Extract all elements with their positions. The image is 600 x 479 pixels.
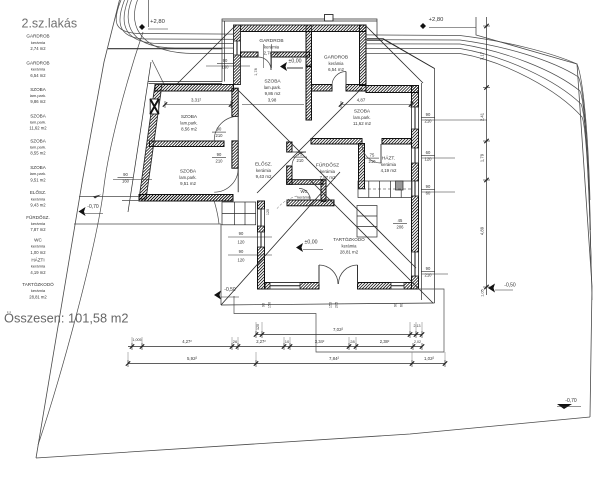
svg-text:-0,70: -0,70 <box>565 398 577 404</box>
svg-text:TARTÓZKODÓ: TARTÓZKODÓ <box>333 236 365 242</box>
svg-text:9,43 m2: 9,43 m2 <box>30 203 46 208</box>
svg-text:ELŐSZ.: ELŐSZ. <box>30 189 46 195</box>
svg-text:kerámia: kerámia <box>264 45 280 50</box>
svg-text:WC: WC <box>34 238 42 243</box>
svg-text:lam.park.: lam.park. <box>179 175 196 180</box>
svg-text:210: 210 <box>297 158 305 163</box>
svg-text:9,43 m2: 9,43 m2 <box>256 174 272 179</box>
svg-text:60: 60 <box>426 191 431 196</box>
svg-text:9,51 m2: 9,51 m2 <box>180 181 196 186</box>
svg-text:-0,70: -0,70 <box>87 204 99 210</box>
svg-text:GARDROB: GARDROB <box>26 34 49 39</box>
svg-text:4,87: 4,87 <box>357 98 366 103</box>
svg-text:7,84²: 7,84² <box>329 356 340 361</box>
svg-text:4,19 m2: 4,19 m2 <box>30 270 46 275</box>
svg-text:28: 28 <box>350 339 355 344</box>
svg-text:FÜRDŐSZ.: FÜRDŐSZ. <box>26 214 49 220</box>
svg-text:kerámia: kerámia <box>342 244 358 249</box>
svg-text:kerámia: kerámia <box>256 168 272 173</box>
svg-text:SZOBA: SZOBA <box>180 169 197 175</box>
svg-text:1,005: 1,005 <box>133 338 142 342</box>
svg-text:1,02²: 1,02² <box>424 356 435 361</box>
svg-text:lam.park.: lam.park. <box>30 145 46 150</box>
svg-text:SZOBA: SZOBA <box>30 113 47 118</box>
svg-text:6,54 m2: 6,54 m2 <box>328 67 344 72</box>
svg-text:10: 10 <box>285 339 290 344</box>
svg-text:1,00 m2: 1,00 m2 <box>30 250 46 255</box>
svg-text:kerámia: kerámia <box>329 61 345 66</box>
svg-text:120: 120 <box>425 157 433 162</box>
svg-text:7,87 m2: 7,87 m2 <box>30 227 46 232</box>
svg-text:9,86 m2: 9,86 m2 <box>265 91 281 96</box>
svg-text:SZOBA: SZOBA <box>354 109 371 115</box>
svg-text:1,05: 1,05 <box>481 289 485 296</box>
svg-text:±0,00: ±0,00 <box>305 240 318 246</box>
svg-text:9,86 m2: 9,86 m2 <box>30 99 46 104</box>
svg-text:28,81 m2: 28,81 m2 <box>340 250 359 255</box>
svg-text:1,78: 1,78 <box>254 68 258 75</box>
svg-text:HÁZT.: HÁZT. <box>382 155 395 162</box>
svg-text:HÁZTI: HÁZTI <box>31 256 44 262</box>
svg-text:kerámia: kerámia <box>381 162 397 167</box>
svg-text:GARDROB: GARDROB <box>26 61 49 66</box>
svg-text:lam.park.: lam.park. <box>180 121 197 126</box>
svg-text:2.sz.lakás: 2.sz.lakás <box>22 17 78 31</box>
svg-text:FÜRDŐSZ: FÜRDŐSZ <box>316 162 339 169</box>
svg-text:8,55 m2: 8,55 m2 <box>30 151 46 156</box>
svg-text:3,17: 3,17 <box>480 51 485 60</box>
svg-text:60: 60 <box>426 150 431 155</box>
svg-text:5,92²: 5,92² <box>187 356 198 361</box>
svg-text:90: 90 <box>426 112 431 117</box>
svg-text:150: 150 <box>329 302 333 308</box>
svg-text:9,51 m2: 9,51 m2 <box>30 177 46 182</box>
svg-text:SZOBA: SZOBA <box>181 114 198 120</box>
svg-text:28,81 m2: 28,81 m2 <box>29 294 47 299</box>
svg-text:3,98: 3,98 <box>268 98 277 103</box>
svg-text:90: 90 <box>223 58 228 63</box>
svg-text:2,02: 2,02 <box>414 340 421 344</box>
svg-text:lam.park.: lam.park. <box>353 115 370 120</box>
svg-text:120: 120 <box>238 258 246 263</box>
svg-text:kerámia: kerámia <box>31 288 46 293</box>
svg-text:6,54 m2: 6,54 m2 <box>30 73 46 78</box>
svg-text:75: 75 <box>298 152 303 157</box>
svg-text:2,38²: 2,38² <box>380 339 390 344</box>
svg-text:60: 60 <box>400 303 404 307</box>
svg-text:90: 90 <box>426 184 431 189</box>
svg-text:-0,50: -0,50 <box>504 283 516 289</box>
svg-text:SZOBA: SZOBA <box>30 87 47 92</box>
svg-text:kerámia: kerámia <box>31 67 46 72</box>
svg-text:ELŐSZ.: ELŐSZ. <box>255 161 272 168</box>
svg-text:45: 45 <box>398 218 403 223</box>
svg-text:11,62 m2: 11,62 m2 <box>29 126 47 131</box>
svg-text:206: 206 <box>397 225 405 230</box>
svg-text:+2,80: +2,80 <box>150 19 165 25</box>
svg-text:7,02²: 7,02² <box>333 327 344 332</box>
svg-text:kerámia: kerámia <box>31 244 46 249</box>
svg-text:4,19 m2: 4,19 m2 <box>381 168 397 173</box>
svg-text:kerámia: kerámia <box>31 40 46 45</box>
svg-text:SZOBA: SZOBA <box>30 138 47 143</box>
svg-text:lam.park.: lam.park. <box>30 171 46 176</box>
svg-text:90: 90 <box>262 303 266 307</box>
svg-text:26: 26 <box>233 339 238 344</box>
svg-text:4,27²: 4,27² <box>182 339 192 344</box>
svg-text:kerámia: kerámia <box>31 221 46 226</box>
svg-text:120: 120 <box>266 209 270 215</box>
svg-text:lam.park.: lam.park. <box>30 120 46 125</box>
svg-text:3,31²: 3,31² <box>191 98 202 103</box>
svg-text:90: 90 <box>426 266 431 271</box>
svg-text:kerámia: kerámia <box>320 169 336 174</box>
svg-text:11,62 m2: 11,62 m2 <box>353 121 372 126</box>
svg-text:90: 90 <box>394 303 398 307</box>
svg-text:4,89: 4,89 <box>480 226 485 235</box>
svg-text:7,87 m2: 7,87 m2 <box>320 175 336 180</box>
svg-text:lam.park.: lam.park. <box>264 85 281 90</box>
svg-text:3,34²: 3,34² <box>315 339 325 344</box>
svg-text:150: 150 <box>268 302 272 308</box>
svg-text:210: 210 <box>216 133 224 138</box>
svg-text:2,41: 2,41 <box>480 112 485 121</box>
svg-text:210: 210 <box>425 273 433 278</box>
svg-text:90: 90 <box>217 127 222 132</box>
svg-text:2,74 m2: 2,74 m2 <box>30 46 46 51</box>
svg-text:75: 75 <box>370 153 375 158</box>
svg-text:lam.park.: lam.park. <box>30 93 46 98</box>
svg-text:±0,00: ±0,00 <box>289 59 302 65</box>
svg-text:8,56 m2: 8,56 m2 <box>181 127 197 132</box>
svg-text:kerámia: kerámia <box>31 196 46 201</box>
svg-text:-0,50: -0,50 <box>224 287 236 293</box>
svg-text:160: 160 <box>222 65 230 70</box>
svg-text:1,79: 1,79 <box>480 153 485 162</box>
svg-text:120: 120 <box>256 324 260 330</box>
svg-text:WC: WC <box>301 189 308 194</box>
svg-text:2,27²: 2,27² <box>256 339 266 344</box>
svg-text:210: 210 <box>425 119 433 124</box>
svg-text:TARTÓZKODÓ: TARTÓZKODÓ <box>22 281 54 287</box>
svg-text:2,74 m2: 2,74 m2 <box>264 51 280 56</box>
svg-text:GARDROB: GARDROB <box>259 38 283 44</box>
svg-text:SZOBA: SZOBA <box>30 165 47 170</box>
svg-text:90: 90 <box>123 172 128 177</box>
svg-text:90: 90 <box>239 231 244 236</box>
svg-text:kerámia: kerámia <box>31 264 46 269</box>
svg-text:205: 205 <box>335 302 339 308</box>
svg-text:90: 90 <box>239 249 244 254</box>
svg-text:120: 120 <box>238 240 246 245</box>
svg-text:90: 90 <box>217 152 222 157</box>
svg-text:GARDROB: GARDROB <box>324 55 348 61</box>
svg-text:210: 210 <box>369 159 377 164</box>
svg-text:210: 210 <box>216 159 224 164</box>
svg-text:SZOBA: SZOBA <box>264 79 281 85</box>
svg-text:+2,80: +2,80 <box>429 17 444 23</box>
svg-text:2,13: 2,13 <box>414 324 421 328</box>
svg-text:kerámia: kerámia <box>297 196 311 200</box>
svg-text:Összesen: 101,58 m2: Összesen: 101,58 m2 <box>4 311 128 326</box>
